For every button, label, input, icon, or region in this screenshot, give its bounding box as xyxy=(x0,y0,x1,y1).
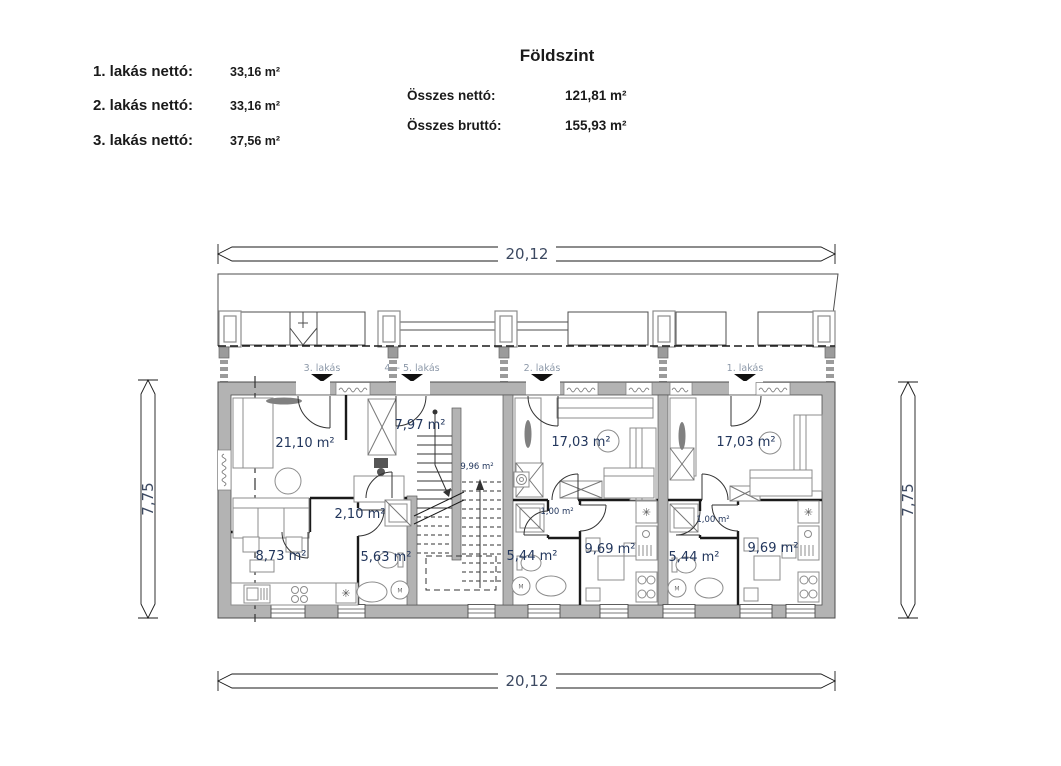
unit-label-1: 1. lakás xyxy=(727,363,764,374)
room-area-bath2: 5,44 m² xyxy=(507,549,558,564)
room-area-hall2: 1,00 m² xyxy=(540,507,573,517)
porch-boxes xyxy=(241,312,830,345)
dimension-right-label: 7,75 xyxy=(899,483,917,516)
unit-label-45: 4. - 5. lakás xyxy=(384,363,439,374)
floor-plan-drawing: 20,12 20,12 7,75 7,75 xyxy=(0,0,1061,766)
room-area-stair: 9,96 m² xyxy=(460,462,493,472)
boiler-label: ✳ xyxy=(341,587,350,600)
entrance-arrow-icon xyxy=(311,374,756,382)
boiler-label: ✳ xyxy=(804,506,813,519)
left-wall-window xyxy=(218,450,232,490)
boiler-label: ✳ xyxy=(642,506,651,519)
unit-labels: 3. lakás 4. - 5. lakás 2. lakás 1. lakás xyxy=(304,363,764,382)
room-area-living1: 17,03 m² xyxy=(716,435,775,450)
unit-label-2: 2. lakás xyxy=(524,363,561,374)
dimension-left-label: 7,75 xyxy=(139,482,157,515)
room-area-living3: 21,10 m² xyxy=(275,436,334,451)
room-area-hall1: 1,00 m² xyxy=(696,515,729,525)
floor-plan-page: Földszint 1. lakás nettó: 33,16 m² 2. la… xyxy=(0,0,1061,766)
room-area-bath1: 5,44 m² xyxy=(669,550,720,565)
room-area-living2: 17,03 m² xyxy=(551,435,610,450)
washer-label: M xyxy=(518,584,523,591)
room-area-room2: 9,69 m² xyxy=(585,542,636,557)
unit-label-3: 3. lakás xyxy=(304,363,341,374)
room-area-room1: 9,69 m² xyxy=(748,541,799,556)
room-area-bath3: 5,63 m² xyxy=(361,550,412,565)
dimension-bottom-label: 20,12 xyxy=(506,672,549,690)
washer-label: M xyxy=(397,588,402,595)
washer-label: M xyxy=(674,586,679,593)
porch-stair-marker xyxy=(290,312,317,345)
room-area-hall3: 2,10 m² xyxy=(335,507,386,522)
room-area-entry3: 7,97 m² xyxy=(395,418,446,433)
dimension-top-label: 20,12 xyxy=(506,245,549,263)
room-area-room3: 8,73 m² xyxy=(256,549,307,564)
